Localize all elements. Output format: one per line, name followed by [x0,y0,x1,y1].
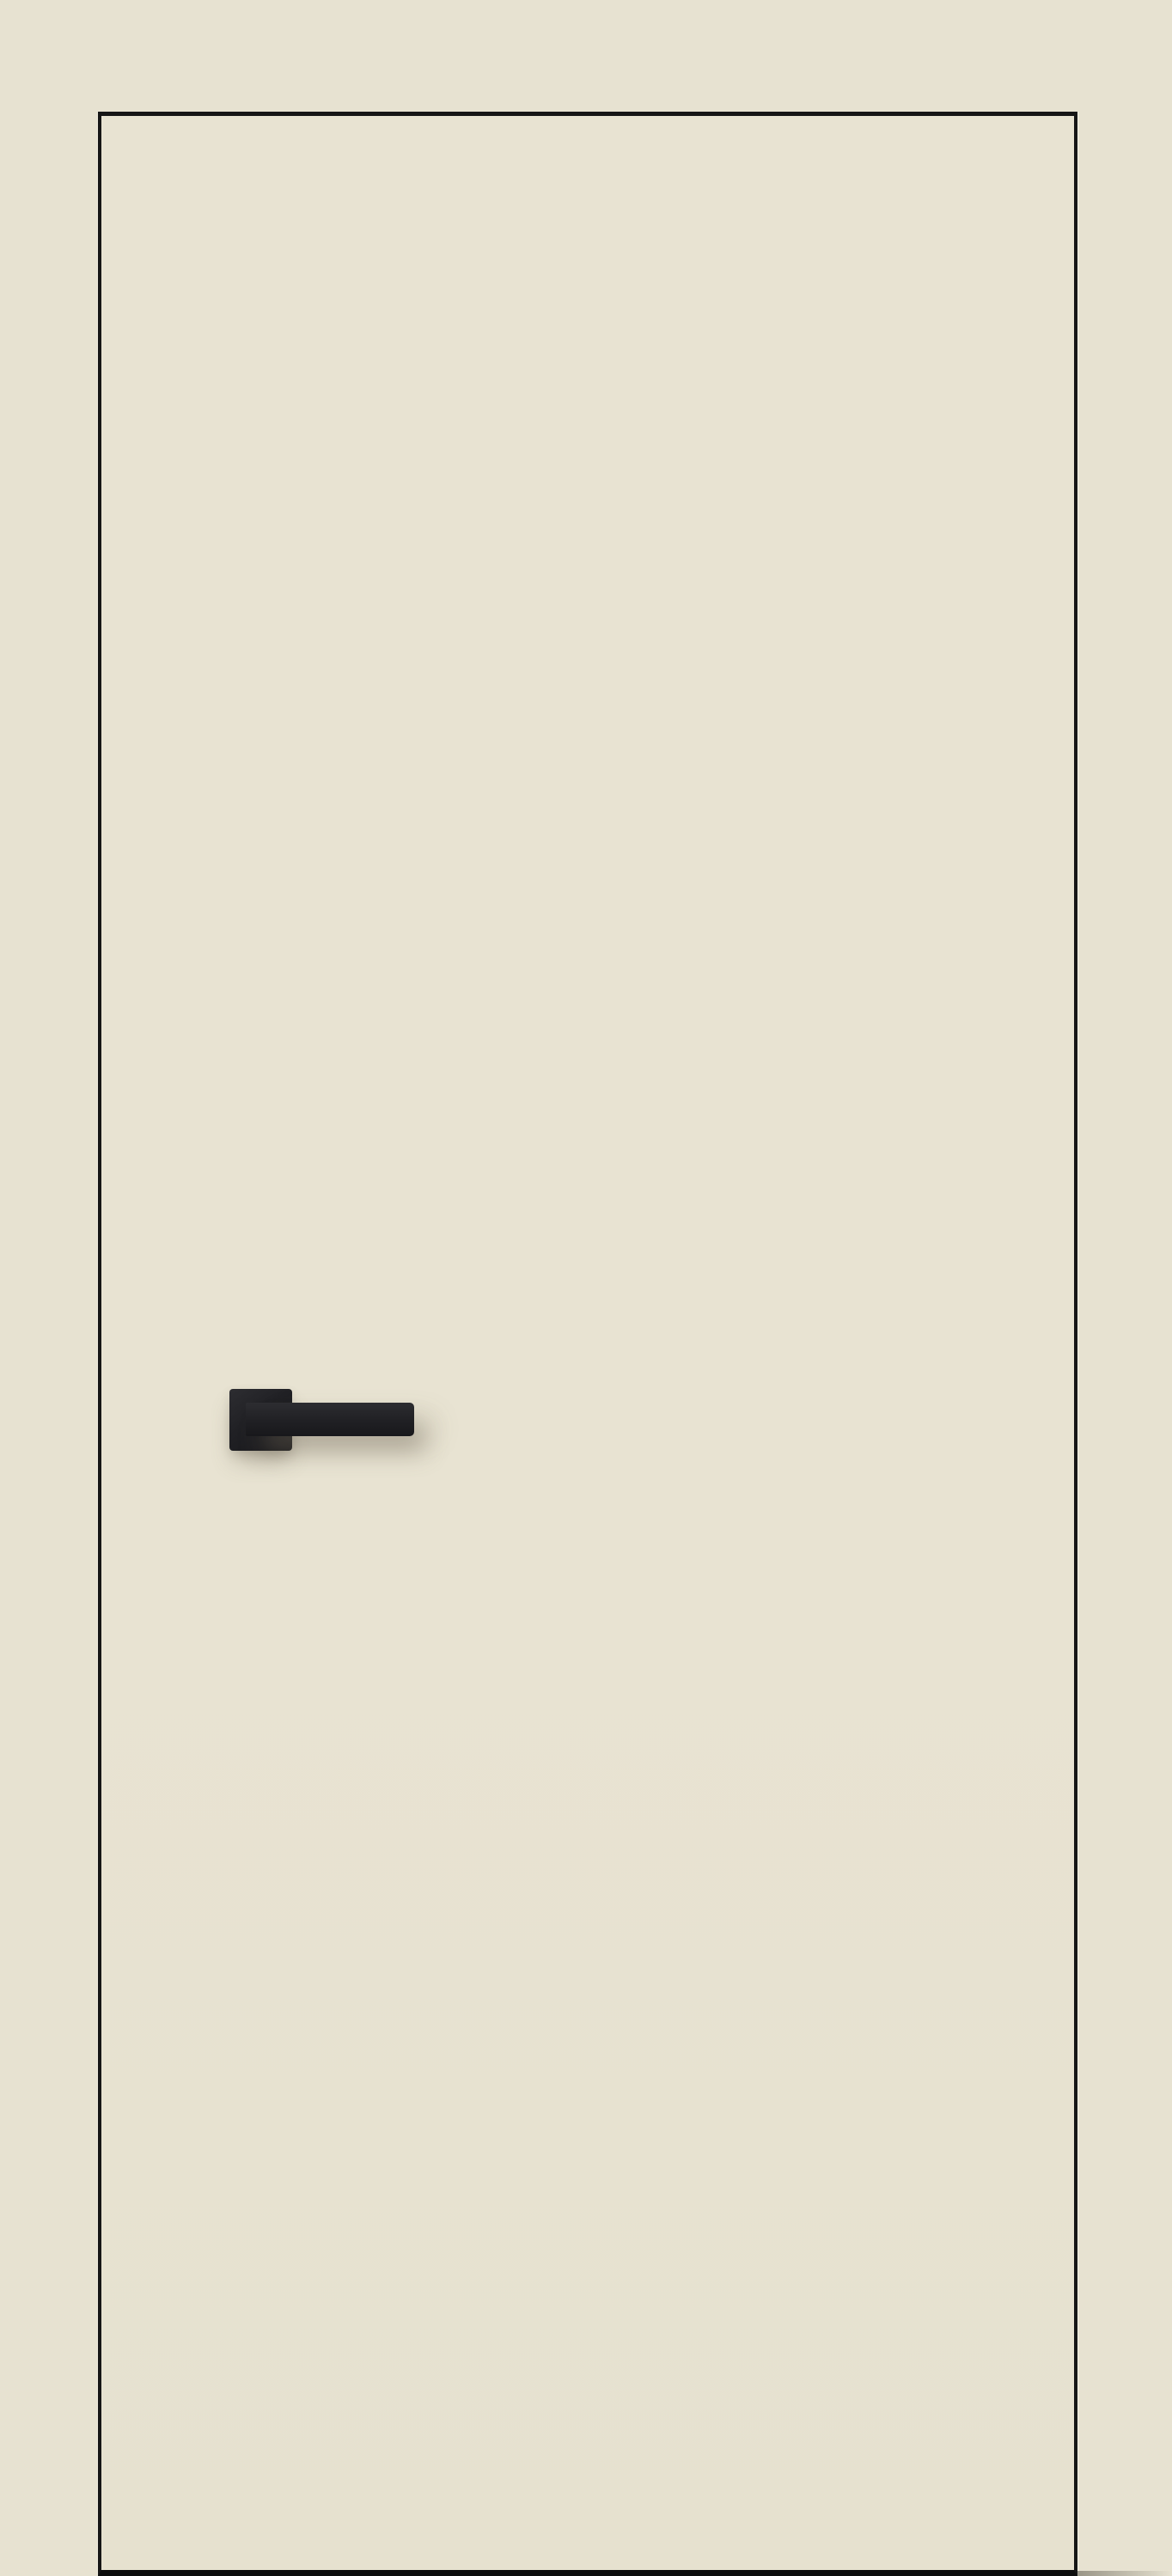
handle-lever [246,1403,414,1436]
door-panel [98,112,1077,2576]
studio-background [0,0,1172,2576]
door-bottom-shadow [1077,2571,1172,2576]
